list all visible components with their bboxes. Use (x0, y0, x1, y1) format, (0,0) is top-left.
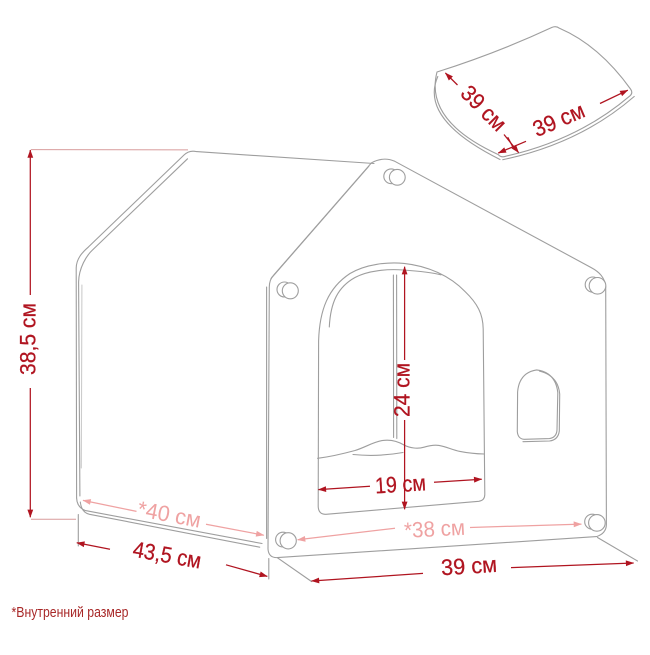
svg-text:24 см: 24 см (390, 363, 415, 417)
svg-text:*Внутренний размер: *Внутренний размер (12, 605, 129, 621)
svg-text:38,5 см: 38,5 см (16, 303, 41, 375)
svg-text:*38 см: *38 см (403, 515, 465, 543)
svg-text:19 см: 19 см (374, 470, 426, 498)
svg-text:39 см: 39 см (440, 552, 497, 580)
